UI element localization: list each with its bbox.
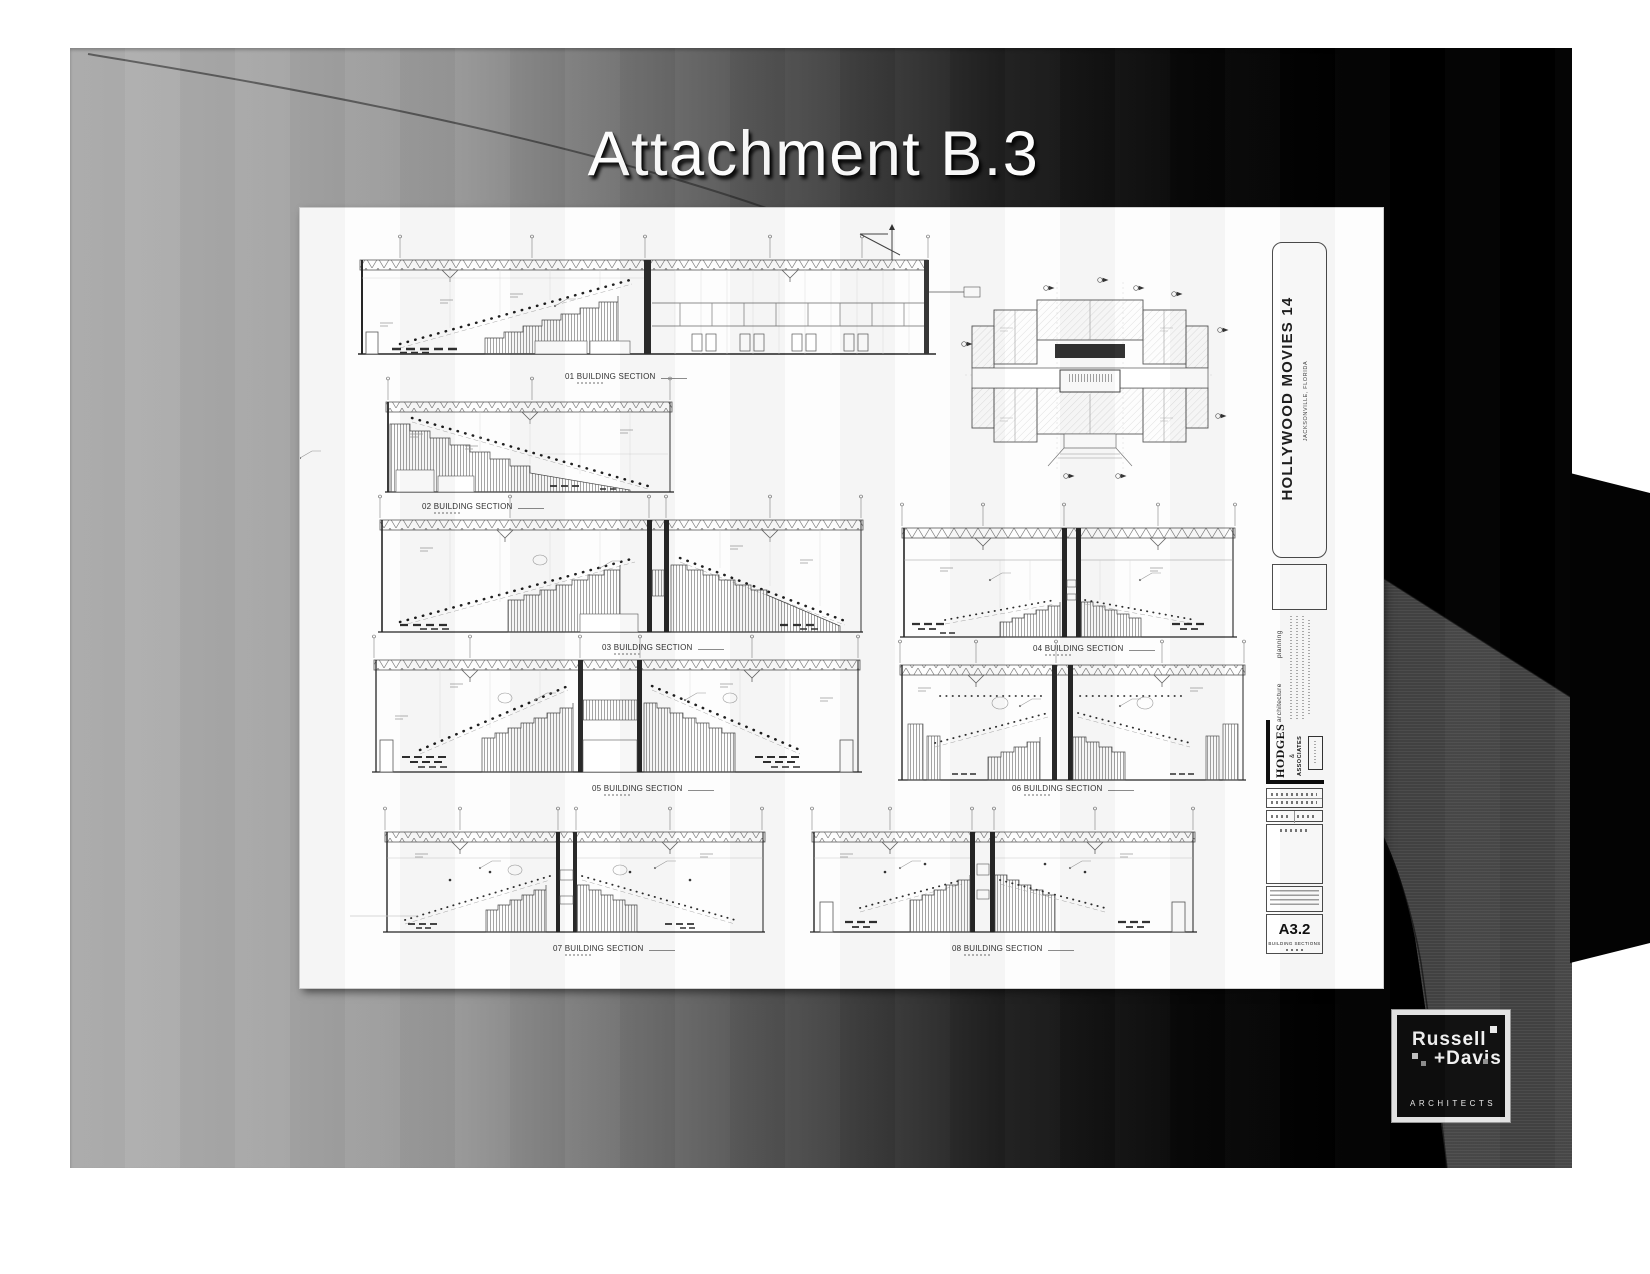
firm-practice-architecture: architecture <box>1276 670 1283 722</box>
section-04-drawing <box>900 503 1237 637</box>
sheet-title: BUILDING SECTIONS <box>1267 941 1322 946</box>
logo-line-davis: +Davis <box>1434 1048 1502 1070</box>
firm-practice-planning: planning <box>1276 618 1283 658</box>
project-location: JACKSONVILLE, FLORIDA <box>1303 281 1309 521</box>
sheet-linework <box>300 208 1383 988</box>
section-label-04: 04 BUILDING SECTION <box>1033 644 1155 653</box>
section-label-06: 06 BUILDING SECTION <box>1012 784 1134 793</box>
firm-logo-hodges: HODGES & ASSOCIATES <box>1266 720 1324 784</box>
address-fineprint <box>1290 616 1292 720</box>
section-label-07: 07 BUILDING SECTION <box>553 944 675 953</box>
section-label-05: 05 BUILDING SECTION <box>592 784 714 793</box>
section-label-08: 08 BUILDING SECTION <box>952 944 1074 953</box>
section-08-drawing <box>810 807 1197 932</box>
section-label-03: 03 BUILDING SECTION <box>602 643 724 652</box>
section-label-02: 02 BUILDING SECTION <box>422 502 544 511</box>
sheet-number: A3.2 <box>1267 921 1322 938</box>
project-title: HOLLYWOOD MOVIES 14 <box>1279 246 1296 551</box>
titleblock-sheetnumber-box: A3.2 BUILDING SECTIONS <box>1266 914 1323 954</box>
firm-associates: ASSOCIATES <box>1297 726 1303 776</box>
logo-deco-square <box>1490 1026 1497 1033</box>
slide-title: Attachment B.3 <box>588 118 1040 190</box>
key-plan <box>962 278 1229 479</box>
drawing-sheet: 01 BUILDING SECTION 02 BUILDING SECTION … <box>300 208 1383 988</box>
titleblock-project-box: HOLLYWOOD MOVIES 14 JACKSONVILLE, FLORID… <box>1272 242 1327 558</box>
section-06-drawing <box>898 640 1246 780</box>
scan-artifact-band <box>1570 468 1650 968</box>
logo-line-architects: ARCHITECTS <box>1410 1099 1496 1108</box>
titleblock-revisions-box <box>1266 824 1323 884</box>
titleblock-fineprint-box <box>1266 886 1323 912</box>
scanned-page: Attachment B.3 <box>0 0 1650 1274</box>
section-05-drawing <box>372 635 862 772</box>
firm-seal-box <box>1308 736 1323 770</box>
russell-davis-logo: Russell +Davis ARCHITECTS <box>1392 1010 1510 1122</box>
section-02-drawing <box>300 377 674 492</box>
section-label-01: 01 BUILDING SECTION <box>565 372 687 381</box>
titleblock-empty-box <box>1272 564 1327 610</box>
section-01-drawing <box>358 224 980 354</box>
section-03-drawing <box>378 495 863 632</box>
section-07-drawing <box>383 807 765 932</box>
firm-name: HODGES <box>1273 723 1288 778</box>
titleblock-scale-box <box>1266 810 1323 822</box>
presentation-slide: Attachment B.3 <box>70 48 1572 1168</box>
firm-ampersand: & <box>1290 746 1296 758</box>
titleblock-drawn-date-box <box>1266 788 1323 808</box>
